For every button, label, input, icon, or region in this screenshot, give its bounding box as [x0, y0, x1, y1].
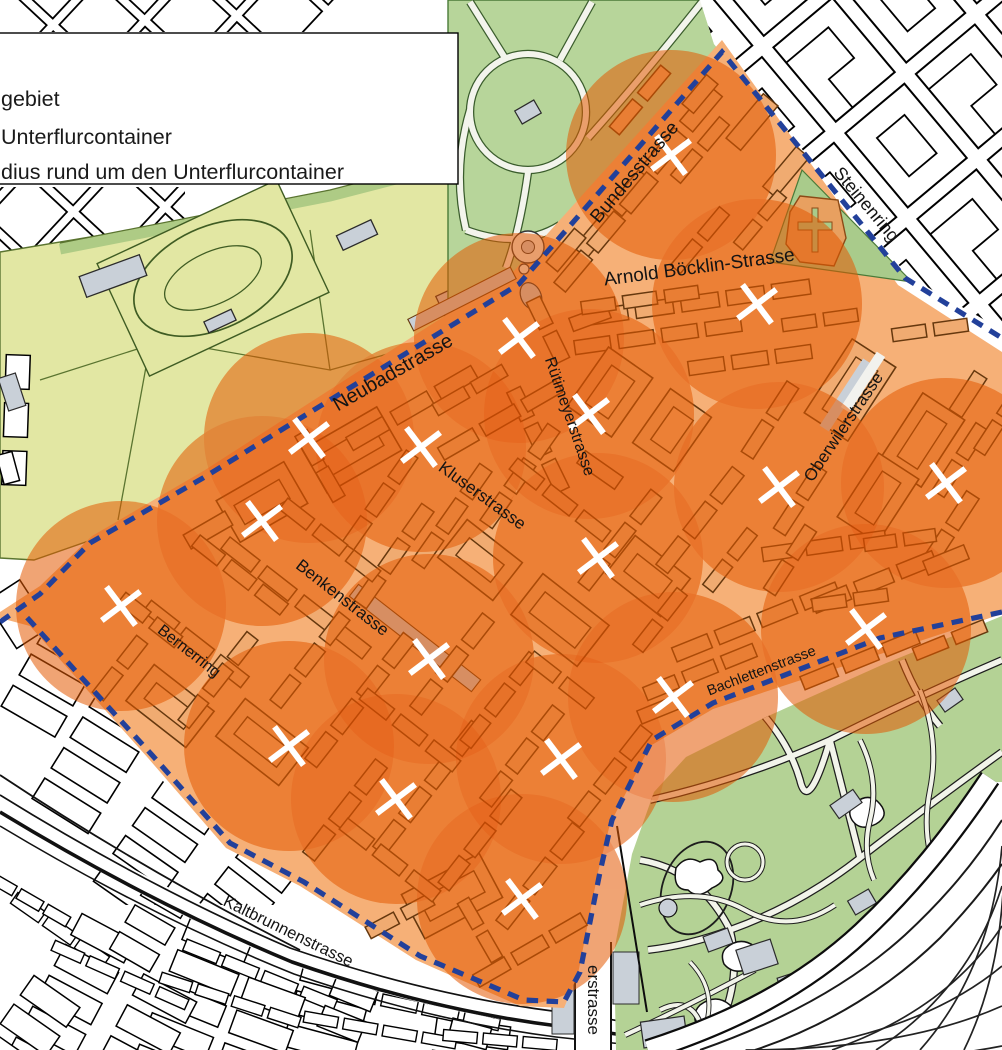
- svg-text:erstrasse: erstrasse: [584, 965, 603, 1035]
- svg-text:Unterflurcontainer: Unterflurcontainer: [1, 125, 172, 149]
- svg-text:dius rund um den Unterflurcont: dius rund um den Unterflurcontainer: [1, 160, 344, 184]
- svg-text:gebiet: gebiet: [1, 87, 60, 111]
